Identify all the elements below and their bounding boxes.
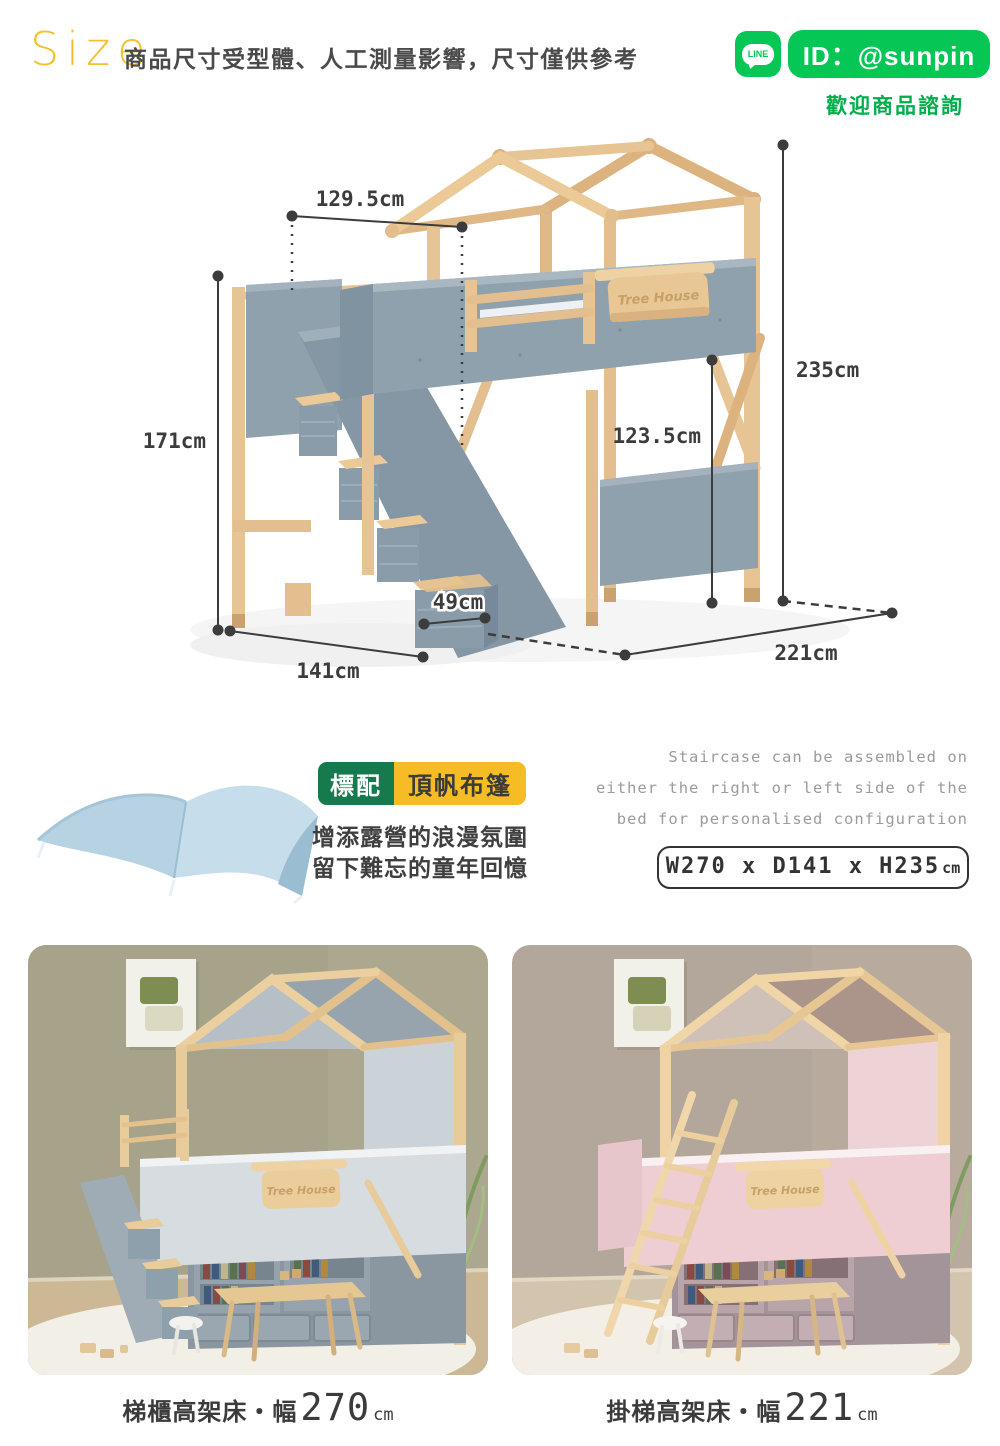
badge-canopy-item: 頂帆布篷 (394, 762, 526, 805)
canopy-desc-line1: 增添露營的浪漫氛圍 (312, 822, 528, 853)
dim-bed-top-width: 129.5cm (316, 187, 405, 211)
tree-house-sign: Tree House (594, 262, 717, 323)
caption-left-name: 梯櫃高架床・幅 (122, 1392, 297, 1427)
caption-stair-cabinet-bed: 梯櫃高架床・幅 270 cm (28, 1386, 488, 1429)
overall-size-unit: cm (942, 859, 960, 877)
caption-left-unit: cm (373, 1405, 393, 1425)
caption-ladder-bed: 掛梯高架床・幅 221 cm (512, 1386, 972, 1429)
line-id-badge[interactable]: ID：@sunpin (788, 30, 990, 78)
staircase-note-line1: Staircase can be assembled on (596, 742, 968, 773)
dim-step-depth: 49cm (433, 590, 484, 614)
dim-total-height: 235cm (796, 358, 859, 382)
staircase-note-line2: either the right or left side of the (596, 773, 968, 804)
stair-handrail-post (362, 393, 374, 575)
staircase-note-line3: bed for personalised configuration (596, 804, 968, 835)
line-icon-label: LINE (748, 49, 769, 59)
photo-gray-bed: Tree House (28, 945, 488, 1375)
overall-size-box: W270 x D141 x H235 cm (657, 846, 969, 889)
product-size-page: Size 商品尺寸受型體、人工測量影響，尺寸僅供參考 LINE ID：@sunp… (0, 0, 1000, 1446)
size-disclaimer: 商品尺寸受型體、人工測量影響，尺寸僅供參考 (124, 40, 639, 74)
line-app-icon[interactable]: LINE (735, 31, 781, 77)
dim-base-depth: 141cm (296, 659, 359, 683)
badge-standard: 標配 (318, 762, 394, 805)
caption-right-unit: cm (857, 1405, 877, 1425)
tree-house-sign-photo: Tree House (735, 1159, 833, 1209)
photo-gray-bed-svg: Tree House (28, 945, 488, 1375)
caption-right-name: 掛梯高架床・幅 (606, 1392, 781, 1427)
canopy-illustration (24, 736, 332, 904)
line-welcome-text: 歡迎商品諮詢 (826, 90, 964, 120)
tree-house-sign-photo: Tree House (251, 1159, 349, 1209)
caption-right-value: 221 (784, 1386, 854, 1429)
canopy-fabric (38, 786, 318, 903)
canopy-desc-line2: 留下難忘的童年回憶 (312, 853, 528, 884)
photo-pink-bed-svg: Tree House (512, 945, 972, 1375)
line-speech-bubble-icon: LINE (742, 44, 774, 65)
dim-stair-side-height: 171cm (143, 429, 206, 453)
overall-size-value: W270 x D141 x H235 (666, 849, 940, 885)
dim-under-bed-clearance: 123.5cm (612, 424, 701, 448)
photo-pink-bed: Tree House (512, 945, 972, 1375)
dim-base-width: 221cm (774, 641, 837, 665)
tree-house-sign-label-right: Tree House (750, 1183, 820, 1198)
tree-house-sign-label-left: Tree House (266, 1183, 336, 1198)
wall-art (126, 959, 199, 1050)
canopy-description: 增添露營的浪漫氛圍 留下難忘的童年回憶 (312, 822, 528, 884)
canopy-badges: 標配 頂帆布篷 (318, 762, 526, 805)
canopy-svg (24, 736, 332, 904)
caption-left-value: 270 (300, 1386, 370, 1429)
dimension-diagram: Tree House (0, 130, 1000, 712)
staircase-note: Staircase can be assembled on either the… (596, 742, 968, 835)
loft-bed-diagram-svg: Tree House (0, 130, 1000, 712)
roof-frame (385, 138, 761, 238)
